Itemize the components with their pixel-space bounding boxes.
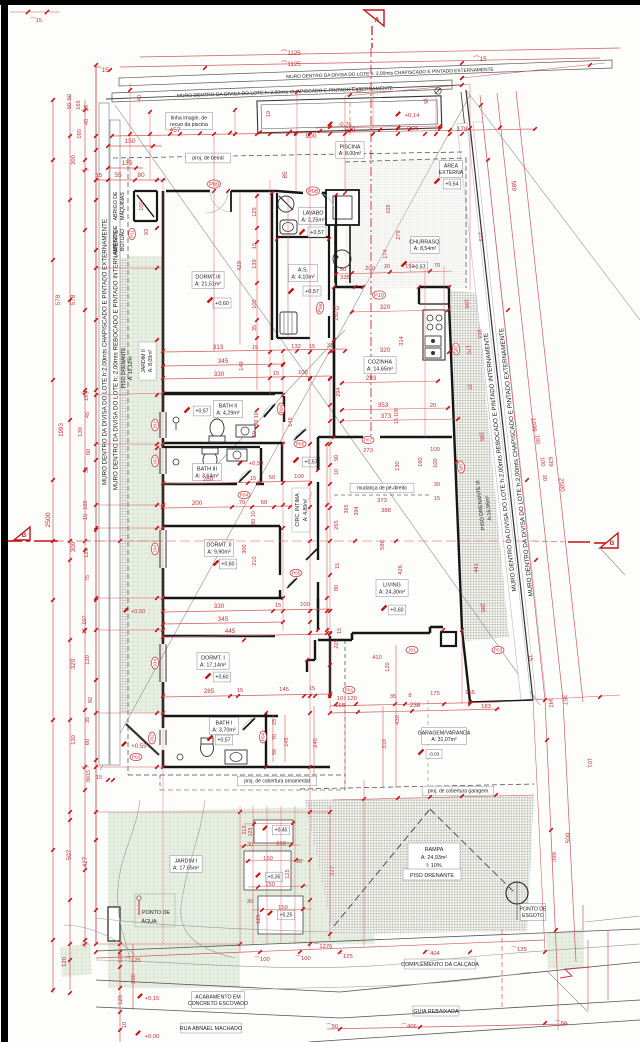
svg-text:P11: P11 [130,230,135,238]
svg-text:150: 150 [405,264,414,270]
svg-text:⌒15: ⌒15 [30,17,42,24]
svg-text:160: 160 [418,457,424,466]
svg-text:175: 175 [430,691,441,697]
svg-text:2500: 2500 [557,478,565,493]
svg-text:J01: J01 [408,648,416,654]
svg-text:90: 90 [334,455,340,461]
svg-text:373: 373 [377,498,387,504]
svg-text:PISCINA: PISCINA [340,144,361,150]
svg-text:426: 426 [398,565,404,575]
svg-text:P07: P07 [364,438,373,444]
svg-text:proj. de cobertura garagem: proj. de cobertura garagem [428,789,488,795]
svg-text:GUIA REBAIXADA: GUIA REBAIXADA [413,1009,459,1015]
svg-text:linha imagin. de: linha imagin. de [171,115,207,121]
svg-text:+0,50: +0,50 [131,609,145,615]
svg-text:105: 105 [83,500,89,509]
svg-text:330: 330 [214,603,225,610]
svg-text:410: 410 [372,655,383,661]
svg-text:285: 285 [479,603,486,613]
svg-text:mudança de pé-direito: mudança de pé-direito [357,486,407,492]
svg-text:50: 50 [67,94,73,100]
svg-text:353: 353 [378,402,389,409]
svg-text:70: 70 [434,263,441,269]
svg-text:427: 427 [82,856,89,867]
svg-text:I: 10%: I: 10% [426,863,441,869]
svg-text:⌒404: ⌒404 [424,950,440,957]
svg-text:DORMT.III: DORMT.III [195,274,220,280]
svg-text:A: 4,10m²: A: 4,10m² [291,274,315,280]
svg-text:120: 120 [347,696,358,702]
svg-text:+0,60: +0,60 [221,562,234,568]
svg-text:+0,57: +0,57 [310,230,324,236]
svg-text:100: 100 [298,370,309,376]
svg-text:150: 150 [278,905,289,911]
svg-text:170: 170 [465,345,472,355]
svg-text:586: 586 [380,540,386,550]
svg-text:MURO DENTRO DA DIVISA DO LOTE: MURO DENTRO DA DIVISA DO LOTE h: 2,00mts… [113,230,120,490]
svg-text:320: 320 [380,304,391,311]
svg-text:P03: P03 [494,648,503,654]
svg-text:285: 285 [204,688,215,695]
svg-text:+0,35: +0,35 [268,875,281,881]
svg-text:P04: P04 [261,732,267,741]
svg-text:+0,54: +0,54 [445,182,458,188]
svg-text:155: 155 [465,690,476,696]
svg-text:377: 377 [330,866,336,876]
svg-text:A: 21,51m²: A: 21,51m² [195,281,222,287]
svg-text:50: 50 [269,475,276,481]
svg-text:P02: P02 [132,755,141,761]
svg-text:15: 15 [434,496,440,502]
svg-text:178: 178 [457,126,468,133]
svg-text:45: 45 [85,412,91,418]
svg-text:⌒1276: ⌒1276 [314,943,333,950]
svg-text:⌒100: ⌒100 [295,955,311,962]
svg-text:210: 210 [252,556,258,565]
svg-text:365: 365 [344,504,350,513]
svg-text:80: 80 [137,172,145,179]
svg-text:330: 330 [214,371,225,378]
svg-text:100: 100 [539,457,546,467]
svg-text:P05: P05 [292,571,301,577]
svg-text:165: 165 [335,703,346,709]
svg-text:33: 33 [333,306,339,312]
svg-text:PISO DRENANTE: PISO DRENANTE [121,347,127,389]
svg-text:150: 150 [263,856,274,862]
svg-text:441: 441 [474,563,480,573]
svg-text:399: 399 [552,852,558,862]
svg-text:35: 35 [390,694,396,700]
svg-text:107: 107 [82,615,88,624]
svg-text:-0,03: -0,03 [429,751,440,756]
svg-text:92: 92 [88,697,94,703]
svg-text:J06: J06 [457,463,464,472]
svg-text:2500: 2500 [45,512,52,527]
svg-text:120: 120 [118,994,124,1005]
svg-text:CHURRASQ.: CHURRASQ. [409,239,440,245]
svg-text:120: 120 [385,662,391,671]
svg-text:+0,15: +0,15 [145,996,161,1002]
svg-text:93: 93 [144,229,150,235]
svg-text:30: 30 [541,474,548,481]
svg-text:33: 33 [327,343,333,349]
svg-text:GARAGEM/VARANDA: GARAGEM/VARANDA [418,730,471,736]
svg-text:100: 100 [430,447,441,453]
svg-text:132: 132 [291,344,301,350]
svg-text:15: 15 [237,688,243,694]
svg-text:J05: J05 [452,345,459,354]
svg-text:30: 30 [247,899,253,905]
svg-text:40: 40 [137,95,143,101]
svg-text:15: 15 [275,603,281,609]
svg-text:125: 125 [256,914,262,923]
svg-text:A: 4,29m²: A: 4,29m² [216,410,240,416]
svg-text:CONCRETO ESCOVADO: CONCRETO ESCOVADO [188,1001,248,1007]
svg-text:30: 30 [434,482,440,488]
svg-text:345: 345 [218,358,229,365]
svg-text:100: 100 [294,474,305,480]
svg-text:145: 145 [288,417,294,426]
svg-text:EXTERNA: EXTERNA [439,170,464,176]
svg-text:265: 265 [334,520,340,529]
svg-text:60: 60 [85,739,91,745]
svg-text:BATH I: BATH I [216,720,233,726]
svg-text:60: 60 [261,500,268,506]
svg-text:J04: J04 [153,659,159,667]
svg-text:P08: P08 [308,189,318,195]
svg-text:P04: P04 [279,404,285,413]
svg-text:174: 174 [383,249,389,258]
svg-text:285: 285 [478,432,485,442]
svg-text:A: 8,00m²: A: 8,00m² [339,151,362,157]
svg-text:135: 135 [122,160,133,167]
svg-text:15: 15 [273,371,279,377]
svg-text:⌒406: ⌒406 [401,1023,417,1030]
svg-text:J02: J02 [153,457,159,465]
svg-text:A: 17,65m²: A: 17,65m² [173,865,200,871]
svg-text:19: 19 [266,111,272,117]
svg-text:8015: 8015 [86,770,92,782]
svg-text:373: 373 [381,413,392,420]
svg-text:B: B [22,532,27,539]
svg-text:RUA ABNAEL MACHADO: RUA ABNAEL MACHADO [180,1026,242,1032]
svg-text:293: 293 [366,375,377,382]
svg-text:⌒125: ⌒125 [511,946,527,953]
svg-text:A: 3,70m²: A: 3,70m² [212,727,236,733]
svg-text:BATH III: BATH III [197,466,217,472]
svg-text:J02: J02 [153,421,159,429]
svg-text:106: 106 [463,299,470,309]
svg-text:101: 101 [585,758,592,768]
svg-text:+0,57: +0,57 [305,289,319,295]
svg-text:80 10: 80 10 [251,511,257,525]
svg-text:⌒50: ⌒50 [555,1020,568,1027]
svg-text:+0,60: +0,60 [390,608,403,614]
svg-text:15: 15 [335,563,341,569]
svg-text:COZINHA: COZINHA [368,359,393,365]
svg-text:250: 250 [131,973,137,984]
svg-text:279: 279 [477,232,484,242]
svg-text:280: 280 [203,476,214,483]
svg-text:120: 120 [62,956,68,967]
svg-text:15: 15 [84,395,90,401]
svg-text:proj. de beiral: proj. de beiral [192,156,223,162]
svg-text:1039: 1039 [529,418,537,433]
svg-text:LIVING: LIVING [383,582,401,588]
svg-text:⌒50: ⌒50 [326,1023,339,1030]
svg-text:BOTIJÃO: BOTIJÃO [119,229,126,251]
svg-text:300: 300 [70,541,77,552]
svg-text:313: 313 [476,329,483,339]
svg-text:A: A [374,17,379,24]
svg-text:345: 345 [218,616,229,623]
svg-text:37: 37 [466,383,473,390]
svg-text:100: 100 [300,602,311,608]
svg-text:150: 150 [276,841,287,847]
svg-text:900: 900 [306,133,317,140]
svg-text:⌒1125: ⌒1125 [281,61,301,68]
svg-text:357: 357 [560,694,568,706]
svg-text:BATH II: BATH II [219,403,237,409]
svg-text:500: 500 [565,832,572,843]
svg-text:+0,60: +0,60 [215,301,229,307]
svg-text:320: 320 [380,347,391,354]
svg-text:160: 160 [534,435,541,445]
svg-text:300: 300 [71,154,77,165]
svg-text:DORMT. I: DORMT. I [201,655,225,661]
svg-text:A: 31,07m²: A: 31,07m² [431,737,457,743]
svg-text:A: 8,09m²: A: 8,09m² [148,349,154,372]
svg-text:273: 273 [363,448,373,454]
svg-text:RAMPA: RAMPA [425,847,444,853]
svg-text:130: 130 [78,426,84,437]
svg-text:130: 130 [71,734,77,745]
svg-text:15: 15 [422,97,429,104]
svg-text:200: 200 [365,266,376,272]
svg-text:279: 279 [396,230,402,239]
svg-text:589: 589 [509,180,517,192]
svg-text:15: 15 [96,775,102,781]
svg-text:+0,55: +0,55 [131,743,147,750]
svg-text:⌒100: ⌒100 [254,956,270,963]
svg-text:120: 120 [85,654,91,665]
svg-text:388: 388 [381,508,391,514]
svg-text:200: 200 [192,500,203,507]
svg-text:150: 150 [334,311,340,320]
svg-text:⌒125: ⌒125 [337,953,353,960]
svg-text:+0,00: +0,00 [145,1034,161,1040]
svg-text:320: 320 [70,658,77,669]
svg-text:314: 314 [399,335,405,346]
svg-text:⌒15: ⌒15 [473,56,487,63]
svg-text:A: 24,93m²: A: 24,93m² [421,855,448,861]
svg-text:50: 50 [252,431,258,437]
svg-text:+0,50: +0,50 [249,461,265,467]
svg-text:MURO DENTRO DA DIVISA DO LOTE: MURO DENTRO DA DIVISA DO LOTE h:2,00mts … [102,219,109,485]
svg-text:80: 80 [334,585,340,591]
svg-text:30: 30 [247,842,253,848]
svg-text:145: 145 [279,687,290,693]
svg-text:J02: J02 [150,734,156,742]
svg-text:507: 507 [66,849,73,860]
svg-text:ÁREA: ÁREA [444,162,459,169]
svg-text:⌒15: ⌒15 [95,67,109,74]
svg-text:20: 20 [384,264,390,270]
svg-text:+0,57: +0,57 [304,460,317,466]
svg-text:335: 335 [340,275,351,281]
svg-text:15: 15 [83,514,89,520]
svg-text:639: 639 [546,457,553,467]
svg-text:225: 225 [334,639,340,648]
svg-text:35: 35 [85,717,91,723]
svg-text:294: 294 [336,387,342,396]
svg-text:A: 8,54m²: A: 8,54m² [414,246,437,252]
svg-text:P10: P10 [374,293,384,299]
svg-text:183: 183 [481,704,491,710]
svg-text:8: 8 [408,693,411,699]
svg-text:85: 85 [282,171,289,178]
svg-text:149: 149 [239,361,245,370]
svg-text:165: 165 [76,100,82,109]
svg-text:A: 17,14m²: A: 17,14m² [200,662,227,668]
svg-text:20: 20 [430,403,437,409]
svg-text:B: B [610,540,615,547]
svg-text:ESGOTO: ESGOTO [522,913,544,919]
svg-text:313: 313 [213,344,224,351]
svg-text:⌒1125: ⌒1125 [281,50,301,57]
svg-text:130: 130 [395,461,401,470]
svg-text:15 109: 15 109 [394,408,400,424]
svg-text:A: 2,25m²: A: 2,25m² [301,217,325,223]
svg-text:⌒125: ⌒125 [125,957,141,964]
svg-text:445: 445 [225,628,236,635]
svg-text:ABRIGO DE: ABRIGO DE [113,225,119,254]
svg-text:+0,60: +0,60 [215,675,228,681]
svg-text:70: 70 [239,500,246,506]
svg-text:ACABAMENTO EM: ACABAMENTO EM [195,994,240,1000]
svg-text:125: 125 [285,869,291,878]
svg-text:578: 578 [55,294,62,305]
svg-text:150: 150 [265,882,276,888]
svg-text:PISO DRENANTE: PISO DRENANTE [410,873,454,879]
svg-text:A: 9,90m²: A: 9,90m² [207,549,231,555]
svg-text:105: 105 [386,204,392,213]
svg-text:50: 50 [340,267,347,273]
svg-text:15: 15 [337,628,343,634]
svg-text:70 10: 70 10 [254,412,260,426]
svg-text:P05: P05 [296,442,305,448]
svg-text:J04: J04 [153,545,159,553]
svg-text:+0,14: +0,14 [405,113,421,119]
svg-text:40: 40 [84,119,90,125]
svg-text:55: 55 [114,172,122,179]
svg-text:60: 60 [86,449,92,455]
svg-text:A.S.: A.S. [298,267,308,273]
svg-text:15: 15 [527,654,534,661]
svg-text:+0,25: +0,25 [280,913,293,919]
svg-text:ABRIGO DE: ABRIGO DE [113,191,119,220]
svg-text:LAVABO: LAVABO [303,210,324,216]
svg-text:⌒15: ⌒15 [350,87,362,94]
svg-text:PONTO DE: PONTO DE [142,910,170,916]
svg-text:10: 10 [334,469,340,475]
svg-text:300: 300 [242,544,248,553]
svg-text:394: 394 [354,506,360,515]
svg-text:JARDIM I: JARDIM I [174,858,197,864]
svg-text:A: 24,30m²: A: 24,30m² [379,589,406,595]
svg-text:+0,57: +0,57 [195,409,208,415]
svg-text:100: 100 [139,201,145,210]
svg-text:proj. de cobertura ornamental: proj. de cobertura ornamental [244,779,310,785]
svg-text:+0,57: +0,57 [217,738,230,744]
svg-text:P01: P01 [345,688,354,694]
svg-text:50: 50 [67,103,73,109]
svg-text:A: 10,12m²: A: 10,12m² [128,355,134,380]
svg-text:DORMT. II: DORMT. II [206,542,231,548]
svg-text:JARDIM II: JARDIM II [141,349,147,373]
svg-text:P04: P04 [240,493,249,499]
svg-text:100: 100 [433,458,439,467]
svg-text:238: 238 [410,702,421,709]
svg-text:A: 14,65m²: A: 14,65m² [367,366,394,372]
svg-text:55: 55 [84,105,90,111]
svg-text:75: 75 [85,575,91,581]
svg-text:10: 10 [122,1022,128,1028]
svg-text:CIRC. ÍNTIMA: CIRC. ÍNTIMA [294,493,301,527]
svg-text:MÁQUINAS: MÁQUINAS [119,192,126,220]
svg-text:160: 160 [77,128,83,139]
svg-text:1993: 1993 [58,423,65,437]
svg-text:-0,26: -0,26 [405,126,418,132]
svg-text:15: 15 [250,476,256,482]
svg-text:10: 10 [337,696,343,702]
